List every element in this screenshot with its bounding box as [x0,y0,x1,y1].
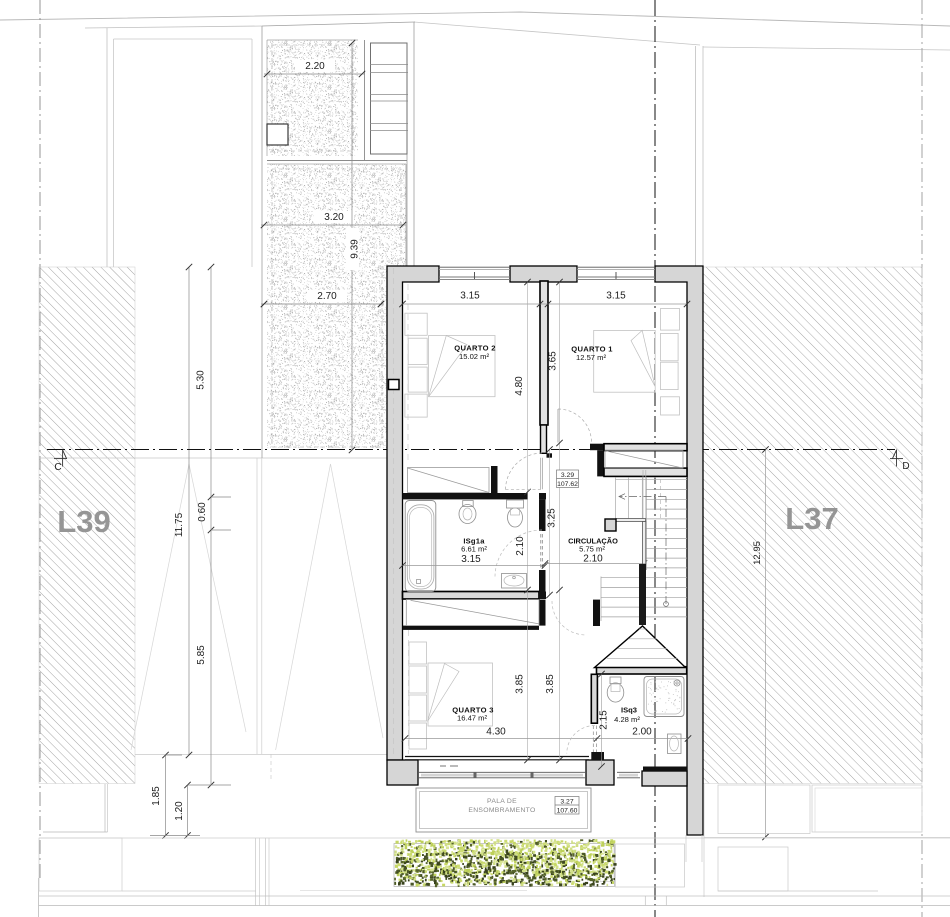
svg-text:2.70: 2.70 [317,291,337,302]
svg-text:5.85: 5.85 [196,645,207,665]
svg-text:ISq3: ISq3 [621,706,637,715]
svg-text:D: D [902,461,909,472]
svg-text:107.60: 107.60 [557,807,578,814]
svg-text:3.15: 3.15 [460,291,480,302]
svg-text:3.15: 3.15 [461,554,481,565]
svg-text:11.75: 11.75 [174,512,185,537]
svg-text:16.47 m²: 16.47 m² [457,714,487,723]
svg-text:12.95: 12.95 [752,541,763,565]
svg-text:3.85: 3.85 [545,674,556,694]
svg-text:ENSOMBRAMENTO: ENSOMBRAMENTO [468,807,535,814]
svg-text:2.10: 2.10 [583,554,603,565]
svg-text:15.02 m²: 15.02 m² [459,352,489,361]
svg-text:3.20: 3.20 [324,212,344,223]
svg-text:4.30: 4.30 [486,727,506,738]
svg-text:1.85: 1.85 [151,786,162,806]
svg-text:2.20: 2.20 [305,61,325,72]
svg-text:0.60: 0.60 [197,502,208,522]
svg-text:2.00: 2.00 [632,727,652,738]
svg-text:5.75 m²: 5.75 m² [579,545,605,554]
svg-text:107.62: 107.62 [557,481,578,488]
svg-text:5.30: 5.30 [196,370,207,390]
svg-text:PALA DE: PALA DE [487,798,517,805]
svg-text:3.27: 3.27 [560,799,573,806]
svg-text:3.85: 3.85 [515,674,526,694]
svg-text:6.61 m²: 6.61 m² [461,545,487,554]
svg-text:4.28 m²: 4.28 m² [614,715,640,724]
svg-text:4.80: 4.80 [514,376,525,396]
svg-text:3.15: 3.15 [606,291,626,302]
svg-text:1.20: 1.20 [174,801,185,821]
svg-text:9.39: 9.39 [350,239,361,259]
svg-text:L37: L37 [785,501,838,536]
svg-text:C: C [54,462,61,473]
svg-text:3.29: 3.29 [561,472,574,479]
svg-text:L39: L39 [57,504,110,539]
svg-text:2.10: 2.10 [515,536,526,556]
svg-text:2.15: 2.15 [599,710,610,730]
svg-text:3.25: 3.25 [547,508,558,528]
svg-text:12.57 m²: 12.57 m² [576,353,606,362]
svg-text:3.65: 3.65 [548,351,559,371]
